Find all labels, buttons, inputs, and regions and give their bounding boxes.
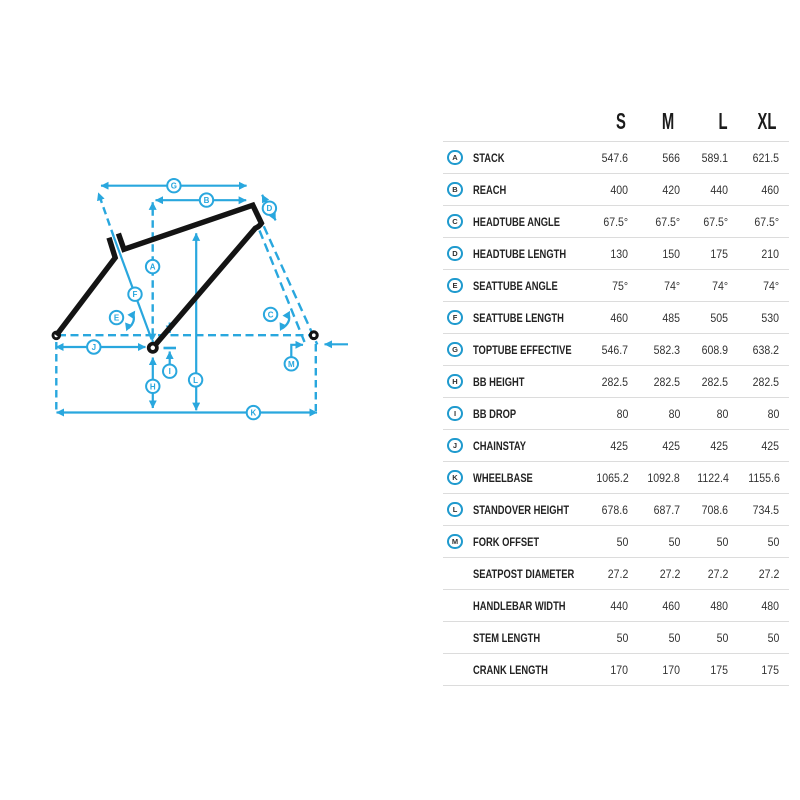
svg-text:B: B: [204, 196, 210, 205]
svg-text:G: G: [171, 182, 177, 191]
svg-text:I: I: [169, 367, 171, 376]
svg-text:D: D: [267, 204, 273, 213]
svg-text:A: A: [150, 263, 156, 272]
svg-text:C: C: [268, 310, 274, 319]
svg-text:K: K: [251, 409, 257, 418]
svg-text:L: L: [193, 376, 198, 385]
svg-text:F: F: [133, 290, 138, 299]
svg-text:J: J: [92, 343, 96, 352]
svg-text:E: E: [114, 314, 120, 323]
svg-text:H: H: [150, 382, 156, 391]
svg-text:M: M: [288, 360, 295, 369]
